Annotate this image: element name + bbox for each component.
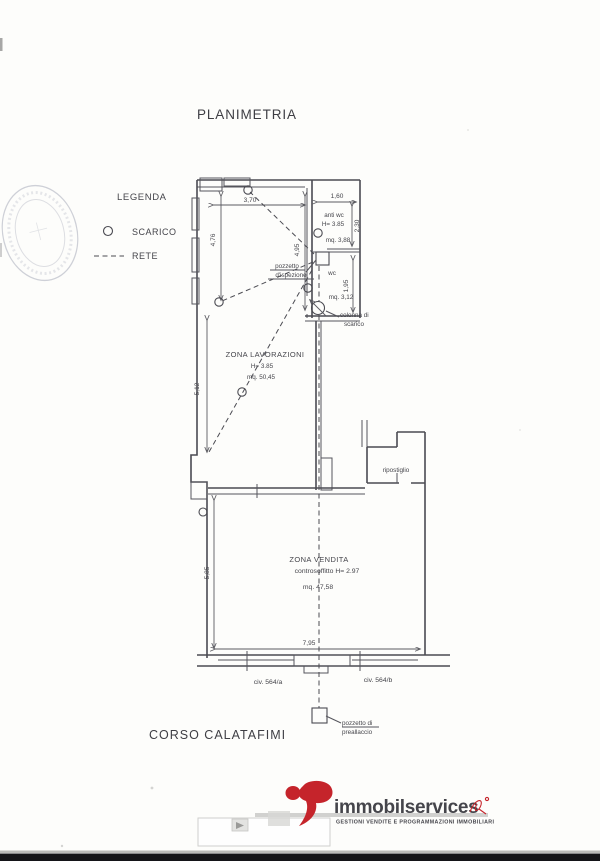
official-stamp-icon: [0, 177, 88, 288]
room-antiwc-name: anti wc: [324, 212, 344, 219]
colonna-label-2: scarico: [344, 321, 364, 328]
dim-vendita-left: 5,85: [204, 566, 211, 579]
brand-name: immobilservices: [334, 797, 478, 818]
room-ripostiglio-name: ripostiglio: [383, 467, 410, 474]
street-label: CORSO CALATAFIMI: [149, 728, 286, 742]
civic-number-a: civ. 564/a: [254, 679, 283, 686]
dim-antiwc-width: 1,60: [331, 193, 344, 200]
pozzetto-preallaccio: pozzetto di preallaccio: [312, 708, 379, 736]
dim-lavorazioni-left: 5,12: [194, 382, 201, 395]
pozzetto-ispezione-label-1: pozzetto: [275, 263, 299, 270]
legend-title: LEGENDA: [117, 192, 167, 203]
preallaccio-label-1: pozzetto di: [342, 720, 372, 727]
dim-entry-right: 4,95: [294, 243, 301, 256]
floor-plan-drawing: PLANIMETRIA LEGENDA SCARICO RETE: [0, 0, 600, 861]
room-vendita-ceiling: controsoffitto H= 2.97: [295, 568, 360, 575]
dim-entry-left: 4,76: [210, 233, 217, 246]
brand-tagline: GESTIONI VENDITE E PROGRAMMAZIONI IMMOBI…: [336, 820, 494, 826]
pozzetto-ispezione-label-2: d'ispezione: [275, 272, 307, 279]
room-lavorazioni-height: H= 3.85: [251, 363, 274, 370]
dim-vendita-width: 7,95: [303, 640, 316, 647]
dim-antiwc-depth: 2,30: [354, 219, 361, 232]
room-vendita-name: ZONA VENDITA: [289, 555, 348, 564]
room-antiwc-area: mq. 3,88: [326, 237, 351, 244]
scan-placeholder-box: [198, 818, 330, 846]
rete-lines: [209, 192, 319, 708]
room-lavorazioni-area: mq. 50,45: [247, 374, 276, 381]
page-title: PLANIMETRIA: [197, 107, 297, 122]
colonna-label-1: colonna di: [340, 312, 369, 319]
civic-number-b: civ. 564/b: [364, 677, 393, 684]
preallaccio-label-2: preallaccio: [342, 729, 373, 736]
scanned-document-page: PLANIMETRIA LEGENDA SCARICO RETE: [0, 0, 600, 861]
room-antiwc-height: H= 3.85: [322, 221, 345, 228]
bottom-scan-bar: [0, 851, 600, 861]
footer-logo: immobilservices GESTIONI VENDITE E PROGR…: [198, 781, 494, 846]
dimension-lines: [207, 196, 420, 649]
dim-wc-depth: 1,95: [343, 279, 350, 292]
legend-scarico-label: SCARICO: [132, 227, 177, 237]
room-wc-name: wc: [327, 270, 336, 277]
room-vendita-area: mq. 47,58: [303, 584, 333, 591]
legend-rete-label: RETE: [132, 251, 158, 261]
dim-top-width: 3,70: [244, 197, 257, 204]
legend: LEGENDA SCARICO RETE: [94, 192, 177, 261]
room-lavorazioni-name: ZONA LAVORAZIONI: [226, 350, 305, 359]
room-wc-area: mq. 3,12: [329, 294, 354, 301]
scan-artifacts: [0, 38, 521, 847]
scarico-symbol-icon: [104, 227, 113, 236]
